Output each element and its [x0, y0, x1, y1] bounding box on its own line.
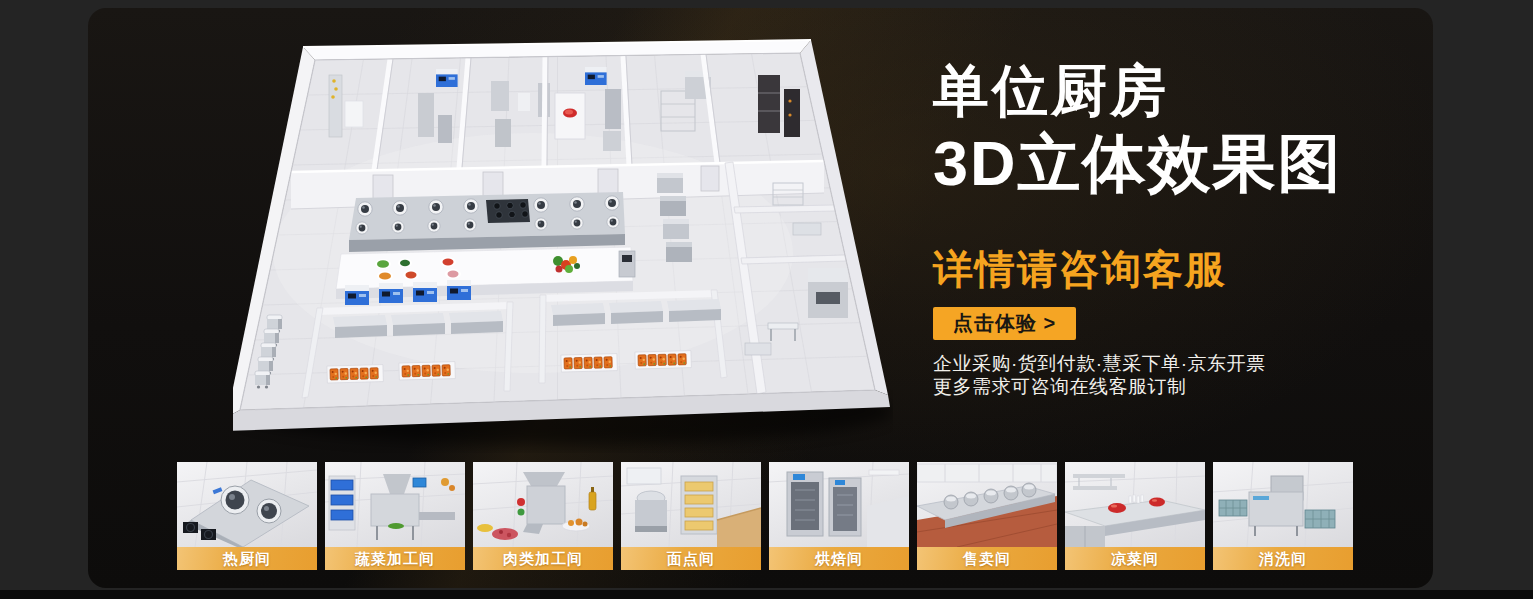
gallery-item-label: 消洗间: [1213, 547, 1353, 570]
kitchen-3d-floorplan-illustration: [233, 23, 893, 453]
pastry-room-thumb: [621, 462, 761, 547]
headline-line2: 3D立体效果图: [933, 126, 1343, 200]
bottom-divider: [0, 590, 1533, 599]
gallery-item-label: 凉菜间: [1065, 547, 1205, 570]
gallery-item-hot-kitchen[interactable]: 热厨间: [177, 462, 317, 570]
gallery-item-label: 售卖间: [917, 547, 1057, 570]
gallery-item-serving-room[interactable]: 售卖间: [917, 462, 1057, 570]
description: 企业采购·货到付款·慧采下单·京东开票 更多需求可咨询在线客服订制: [933, 352, 1265, 398]
description-line1: 企业采购·货到付款·慧采下单·京东开票: [933, 353, 1265, 374]
gallery-item-label: 蔬菜加工间: [325, 547, 465, 570]
cta-button[interactable]: 点击体验 >: [933, 307, 1076, 340]
serving-room-thumb: [917, 462, 1057, 547]
gallery-item-label: 热厨间: [177, 547, 317, 570]
cook-line: [349, 192, 625, 252]
banner-panel: 单位厨房 3D立体效果图 详情请咨询客服 点击体验 > 企业采购·货到付款·慧采…: [88, 8, 1433, 588]
gallery-item-cold-dish-room[interactable]: 凉菜间: [1065, 462, 1205, 570]
baking-room-thumb: [769, 462, 909, 547]
vegetable-processing-thumb: [325, 462, 465, 547]
room-gallery: 热厨间 蔬菜加工间: [177, 462, 1353, 570]
gallery-item-vegetable-processing[interactable]: 蔬菜加工间: [325, 462, 465, 570]
gallery-item-label: 肉类加工间: [473, 547, 613, 570]
subtitle: 详情请咨询客服: [933, 246, 1227, 292]
dishwashing-room-thumb: [1213, 462, 1353, 547]
gallery-item-pastry-room[interactable]: 面点间: [621, 462, 761, 570]
gallery-item-label: 面点间: [621, 547, 761, 570]
meat-processing-thumb: [473, 462, 613, 547]
gallery-item-meat-processing[interactable]: 肉类加工间: [473, 462, 613, 570]
headline-line1: 单位厨房: [933, 56, 1343, 126]
banner: 单位厨房 3D立体效果图 详情请咨询客服 点击体验 > 企业采购·货到付款·慧采…: [0, 0, 1533, 599]
description-line2: 更多需求可咨询在线客服订制: [933, 376, 1187, 397]
hot-kitchen-thumb: [177, 462, 317, 547]
gallery-item-dishwashing-room[interactable]: 消洗间: [1213, 462, 1353, 570]
headline: 单位厨房 3D立体效果图: [933, 56, 1343, 200]
gallery-item-label: 烘焙间: [769, 547, 909, 570]
cold-dish-room-thumb: [1065, 462, 1205, 547]
gallery-item-baking-room[interactable]: 烘焙间: [769, 462, 909, 570]
